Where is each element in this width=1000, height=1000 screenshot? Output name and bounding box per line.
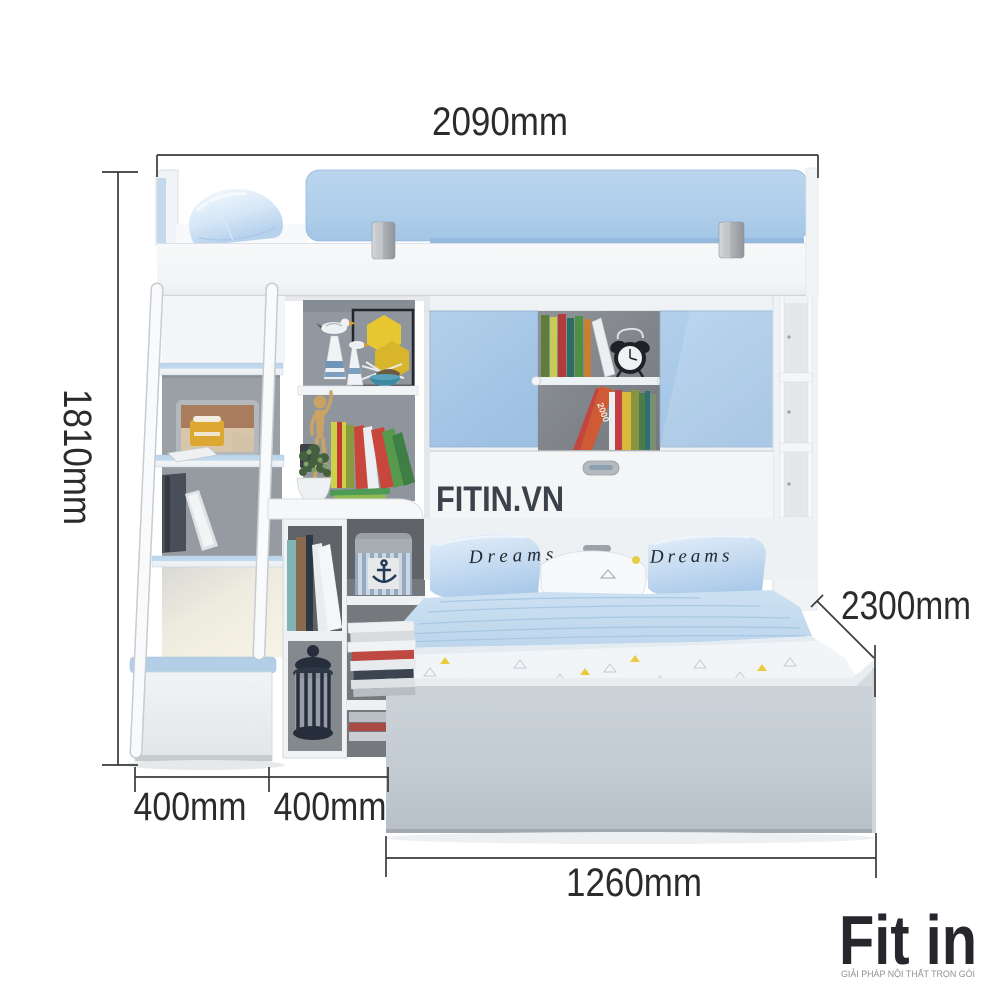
svg-text:400mm: 400mm: [274, 785, 387, 829]
svg-text:Fit in: Fit in: [839, 901, 977, 979]
svg-text:GIẢI PHÁP NỘI THẤT TRỌN GÓI: GIẢI PHÁP NỘI THẤT TRỌN GÓI: [841, 968, 975, 980]
svg-text:400mm: 400mm: [134, 785, 247, 829]
svg-text:FITIN.VN: FITIN.VN: [436, 480, 564, 519]
svg-text:1260mm: 1260mm: [566, 861, 702, 905]
svg-text:2300mm: 2300mm: [841, 584, 971, 628]
svg-text:Dreams: Dreams: [649, 545, 734, 567]
svg-text:2090mm: 2090mm: [432, 100, 568, 144]
svg-text:1810mm: 1810mm: [55, 389, 99, 525]
